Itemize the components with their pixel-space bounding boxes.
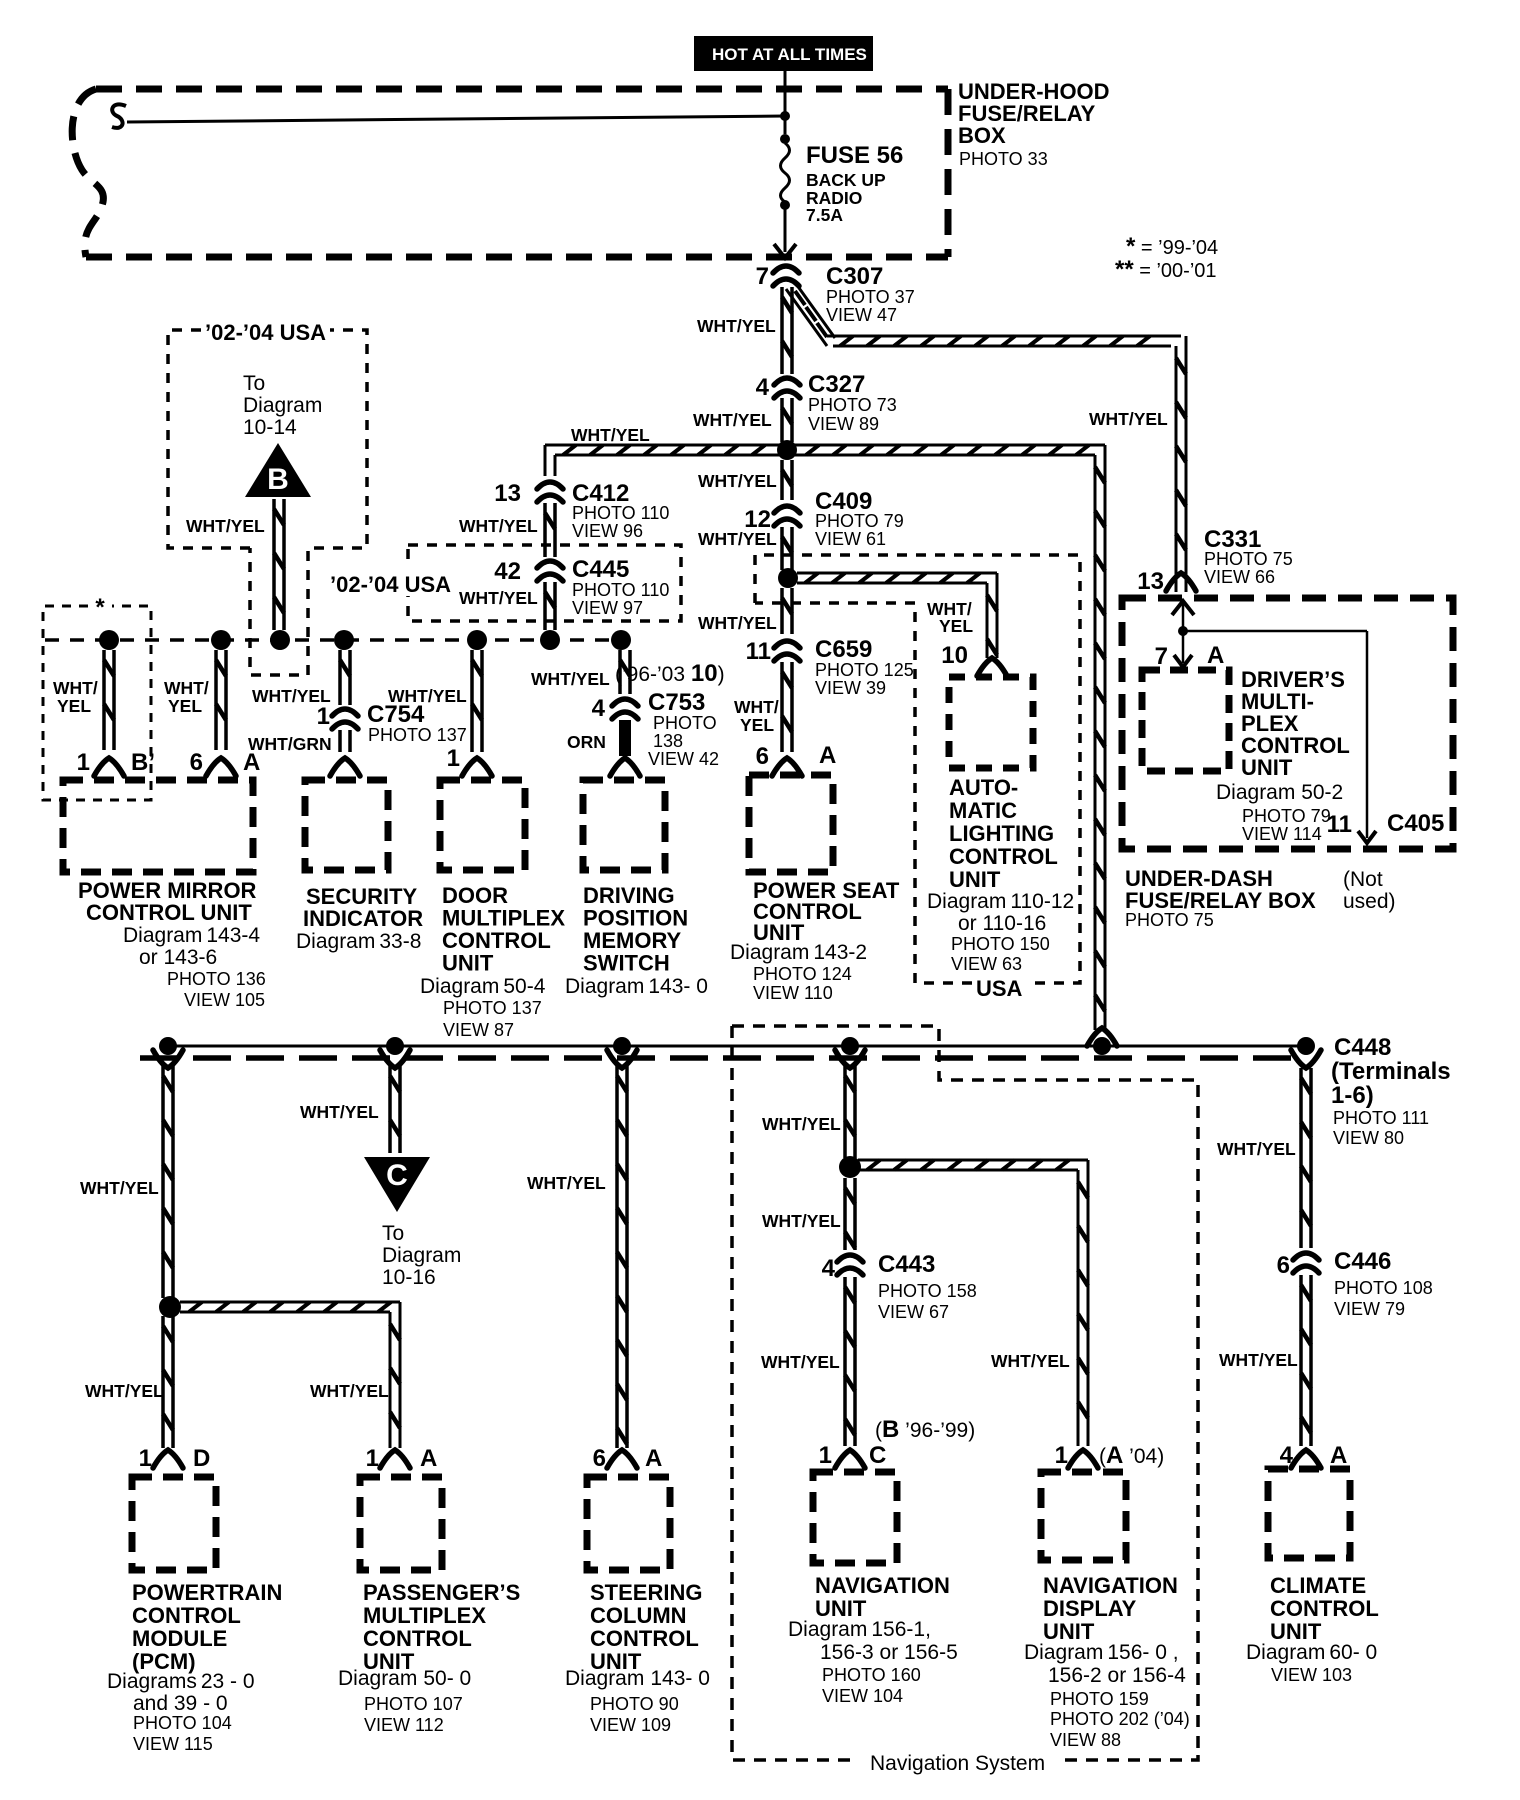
svg-text:PHOTO 158: PHOTO 158 [878,1281,977,1301]
svg-text:A: A [819,742,836,769]
svg-text:YEL: YEL [57,696,91,716]
svg-text:POWERTRAIN: POWERTRAIN [132,1580,282,1605]
svg-text:MATIC: MATIC [949,798,1017,823]
svg-text:PHOTO 110: PHOTO 110 [572,580,669,600]
svg-text:VIEW 104: VIEW 104 [822,1686,903,1706]
svg-text:PHOTO 75: PHOTO 75 [1125,910,1214,930]
svg-text:Diagram143-2: Diagram143-2 [730,941,867,964]
svg-text:WHT/YEL: WHT/YEL [388,686,467,706]
svg-text:Navigation System: Navigation System [870,1752,1045,1775]
svg-text:MULTIPLEX: MULTIPLEX [363,1603,486,1628]
svg-text:UNIT: UNIT [1241,755,1293,780]
svg-text:PHOTO 73: PHOTO 73 [808,395,897,415]
svg-text:VIEW 47: VIEW 47 [826,305,897,325]
svg-text:Diagram110-12: Diagram110-12 [927,890,1074,913]
svg-text:WHT/: WHT/ [734,697,779,717]
svg-text:PHOTO 137: PHOTO 137 [443,998,542,1018]
svg-text:WHT/YEL: WHT/YEL [698,613,777,633]
svg-text:DRIVING: DRIVING [583,883,675,908]
svg-text:DISPLAY: DISPLAY [1043,1596,1137,1621]
svg-text:BOX: BOX [958,123,1006,148]
svg-text:PHOTO 124: PHOTO 124 [753,964,852,984]
svg-text:(B ’96-’99): (B ’96-’99) [875,1416,975,1443]
svg-text:13: 13 [494,480,521,507]
svg-text:VIEW 105: VIEW 105 [184,990,265,1010]
svg-text:USA: USA [976,976,1023,1001]
svg-text:PHOTO 159: PHOTO 159 [1050,1689,1149,1709]
svg-text:4: 4 [756,374,770,401]
svg-text:VIEW 89: VIEW 89 [808,414,879,434]
svg-text:HOT AT ALL TIMES: HOT AT ALL TIMES [712,45,867,64]
svg-text:COLUMN: COLUMN [590,1603,687,1628]
svg-text:VIEW 110: VIEW 110 [753,983,833,1003]
svg-text:Diagram143-4: Diagram143-4 [123,924,260,947]
svg-text:VIEW 109: VIEW 109 [590,1715,671,1735]
svg-text:1: 1 [447,745,460,772]
svg-text:WHT/YEL: WHT/YEL [186,516,265,536]
svg-text:Diagram50- 0: Diagram50- 0 [338,1667,471,1690]
svg-text:VIEW 103: VIEW 103 [1271,1665,1352,1685]
svg-text:VIEW 97: VIEW 97 [572,598,643,618]
svg-text:PHOTO: PHOTO [653,713,717,733]
svg-text:PHOTO 79: PHOTO 79 [815,511,904,531]
svg-text:Diagram143- 0: Diagram143- 0 [565,975,708,998]
svg-text:1: 1 [317,703,330,730]
svg-text:STEERING: STEERING [590,1580,702,1605]
svg-text:C327: C327 [808,371,865,398]
svg-text:C307: C307 [826,263,883,290]
svg-text:Diagram60- 0: Diagram60- 0 [1246,1641,1377,1664]
svg-text:CLIMATE: CLIMATE [1270,1573,1366,1598]
svg-text:PHOTO 110: PHOTO 110 [572,503,669,523]
svg-text:B: B [267,463,289,496]
svg-text:*: * [95,594,105,621]
svg-text:WHT/YEL: WHT/YEL [1217,1139,1296,1159]
svg-text:WHT/YEL: WHT/YEL [698,529,777,549]
svg-text:or 110-16: or 110-16 [958,912,1046,935]
svg-text:WHT/YEL: WHT/YEL [693,410,772,430]
svg-text:PHOTO 111: PHOTO 111 [1333,1108,1429,1128]
svg-text:10: 10 [941,642,968,669]
svg-text:VIEW 79: VIEW 79 [1334,1299,1405,1319]
svg-text:POSITION: POSITION [583,906,688,931]
svg-text:VIEW 87: VIEW 87 [443,1020,514,1040]
svg-text:WHT/: WHT/ [164,678,209,698]
svg-text:PHOTO 37: PHOTO 37 [826,287,915,307]
svg-text:To: To [382,1222,404,1245]
svg-text:WHT/YEL: WHT/YEL [697,316,776,336]
svg-text:WHT/YEL: WHT/YEL [761,1352,840,1372]
svg-text:CONTROL: CONTROL [442,928,551,953]
svg-text:WHT/YEL: WHT/YEL [527,1173,606,1193]
svg-text:PHOTO 137: PHOTO 137 [368,725,467,745]
svg-text:WHT/YEL: WHT/YEL [310,1381,389,1401]
svg-text:11: 11 [746,638,771,665]
svg-text:10-16: 10-16 [382,1266,436,1289]
svg-text:C: C [869,1442,886,1469]
svg-text:YEL: YEL [740,715,774,735]
svg-text:* = ’99-’04: * = ’99-’04 [1126,233,1218,260]
svg-text:VIEW 61: VIEW 61 [815,529,886,549]
svg-text:NAVIGATION: NAVIGATION [815,1573,950,1598]
svg-text:PHOTO 136: PHOTO 136 [167,969,266,989]
svg-text:CONTROL: CONTROL [1270,1596,1379,1621]
svg-text:VIEW 66: VIEW 66 [1204,567,1275,587]
svg-text:PHOTO 104: PHOTO 104 [133,1713,232,1733]
svg-text:A: A [1207,642,1224,669]
svg-text:LIGHTING: LIGHTING [949,821,1054,846]
svg-text:C659: C659 [815,636,872,663]
svg-text:WHT/YEL: WHT/YEL [698,471,777,491]
svg-text:PHOTO 202 (’04): PHOTO 202 (’04) [1050,1709,1190,1729]
svg-text:VIEW 63: VIEW 63 [951,954,1022,974]
svg-text:WHT/YEL: WHT/YEL [85,1381,164,1401]
svg-text:WHT/: WHT/ [53,678,98,698]
svg-text:and 39 - 0: and 39 - 0 [133,1692,228,1715]
svg-text:VIEW 67: VIEW 67 [878,1302,949,1322]
svg-text:YEL: YEL [939,616,973,636]
svg-text:WHT/YEL: WHT/YEL [991,1351,1070,1371]
svg-text:WHT/YEL: WHT/YEL [571,425,650,445]
svg-text:7: 7 [756,263,769,290]
svg-text:PHOTO 90: PHOTO 90 [590,1694,679,1714]
svg-text:13: 13 [1137,568,1164,595]
svg-text:B’: B’ [131,749,155,776]
svg-text:6: 6 [756,743,769,770]
svg-text:PHOTO 79: PHOTO 79 [1242,806,1331,826]
svg-text:(Terminals: (Terminals [1331,1058,1451,1085]
svg-text:C446: C446 [1334,1248,1391,1275]
svg-text:CONTROL: CONTROL [363,1626,472,1651]
svg-text:UNIT: UNIT [442,951,494,976]
svg-text:VIEW 42: VIEW 42 [648,749,719,769]
svg-text:PHOTO 75: PHOTO 75 [1204,549,1293,569]
svg-text:WHT/YEL: WHT/YEL [1219,1350,1298,1370]
svg-text:(A ’04): (A ’04) [1099,1442,1164,1469]
svg-text:156-2 or 156-4: 156-2 or 156-4 [1048,1664,1186,1687]
svg-text:6: 6 [1277,1252,1290,1279]
svg-text:156-3 or 156-5: 156-3 or 156-5 [820,1641,958,1664]
svg-text:UNIT: UNIT [949,867,1001,892]
svg-text:PHOTO 150: PHOTO 150 [951,934,1050,954]
svg-text:DOOR: DOOR [442,883,508,908]
svg-text:C445: C445 [572,556,629,583]
svg-text:or 143-6: or 143-6 [139,946,217,969]
svg-text:VIEW 88: VIEW 88 [1050,1730,1121,1750]
svg-text:WHT/YEL: WHT/YEL [459,588,538,608]
svg-text:used): used) [1343,890,1396,913]
svg-text:10-14: 10-14 [243,416,297,439]
svg-text:1: 1 [1055,1442,1068,1469]
svg-text:WHT/YEL: WHT/YEL [762,1211,841,1231]
svg-text:42: 42 [494,558,521,585]
svg-text:A: A [420,1445,437,1472]
svg-text:1: 1 [77,749,90,776]
svg-text:WHT/GRN: WHT/GRN [248,734,332,754]
svg-text:1: 1 [366,1445,379,1472]
svg-text:WHT/YEL: WHT/YEL [762,1114,841,1134]
svg-text:VIEW 115: VIEW 115 [133,1734,213,1754]
svg-text:C448: C448 [1334,1034,1391,1061]
svg-text:WHT/YEL: WHT/YEL [459,516,538,536]
svg-text:BACK UP: BACK UP [806,170,886,190]
svg-text:A: A [645,1445,662,1472]
svg-text:D: D [193,1445,210,1472]
svg-text:FUSE 56: FUSE 56 [806,142,903,169]
svg-text:MEMORY: MEMORY [583,928,682,953]
svg-text:WHT/YEL: WHT/YEL [300,1102,379,1122]
svg-text:6: 6 [593,1445,606,1472]
svg-text:C753: C753 [648,689,705,716]
svg-text:Diagram33-8: Diagram33-8 [296,930,421,953]
svg-text:Diagram156-1,: Diagram156-1, [788,1618,931,1641]
svg-text:’02-’04 USA: ’02-’04 USA [205,320,326,345]
svg-text:Diagram143- 0: Diagram143- 0 [565,1667,710,1690]
svg-text:PHOTO 125: PHOTO 125 [815,660,914,680]
svg-text:4: 4 [822,1255,836,1282]
svg-text:WHT/YEL: WHT/YEL [80,1178,159,1198]
svg-text:CONTROL UNIT: CONTROL UNIT [86,900,252,925]
svg-text:VIEW 80: VIEW 80 [1333,1128,1404,1148]
svg-text:’02-’04 USA: ’02-’04 USA [330,572,451,597]
svg-text:(Not: (Not [1343,868,1383,891]
svg-text:1: 1 [819,1442,832,1469]
svg-text:YEL: YEL [168,696,202,716]
svg-text:AUTO-: AUTO- [949,775,1018,800]
svg-text:C405: C405 [1387,810,1444,837]
svg-text:Diagram: Diagram [382,1244,461,1267]
svg-text:CONTROL: CONTROL [949,844,1058,869]
svg-text:Diagrams23 - 0: Diagrams23 - 0 [107,1670,255,1693]
svg-text:VIEW 96: VIEW 96 [572,521,643,541]
svg-text:Diagram 50-2: Diagram 50-2 [1216,781,1343,804]
svg-text:C443: C443 [878,1251,935,1278]
svg-text:VIEW 39: VIEW 39 [815,678,886,698]
svg-text:ORN: ORN [567,732,606,752]
svg-text:Diagram50-4: Diagram50-4 [420,975,546,998]
svg-text:PHOTO 160: PHOTO 160 [822,1665,921,1685]
svg-text:A: A [1330,1442,1347,1469]
svg-text:Diagram156- 0 ,: Diagram156- 0 , [1024,1641,1179,1664]
svg-text:PHOTO 107: PHOTO 107 [364,1694,463,1714]
svg-text:4: 4 [592,695,606,722]
svg-text:CONTROL: CONTROL [590,1626,699,1651]
svg-text:VIEW 114: VIEW 114 [1242,824,1322,844]
svg-text:C: C [386,1159,408,1192]
svg-text:6: 6 [190,749,203,776]
svg-text:CONTROL: CONTROL [132,1603,241,1628]
svg-text:MULTIPLEX: MULTIPLEX [442,906,565,931]
svg-text:Diagram: Diagram [243,394,322,417]
svg-text:PASSENGER’S: PASSENGER’S [363,1580,520,1605]
svg-text:PHOTO 108: PHOTO 108 [1334,1278,1433,1298]
svg-text:SWITCH: SWITCH [583,951,670,976]
svg-text:PHOTO 33: PHOTO 33 [959,149,1048,169]
svg-text:7.5A: 7.5A [806,205,843,225]
svg-text:138: 138 [653,731,683,751]
svg-text:To: To [243,372,265,395]
svg-text:WHT/YEL: WHT/YEL [531,669,610,689]
svg-text:VIEW 112: VIEW 112 [364,1715,444,1735]
svg-text:1-6): 1-6) [1331,1082,1374,1109]
svg-text:WHT/YEL: WHT/YEL [1089,409,1168,429]
svg-text:NAVIGATION: NAVIGATION [1043,1573,1178,1598]
svg-text:INDICATOR: INDICATOR [303,906,423,931]
svg-text:MODULE: MODULE [132,1626,227,1651]
svg-text:7: 7 [1155,643,1168,670]
svg-text:** = ’00-’01: ** = ’00-’01 [1115,256,1217,283]
svg-text:1: 1 [139,1445,152,1472]
